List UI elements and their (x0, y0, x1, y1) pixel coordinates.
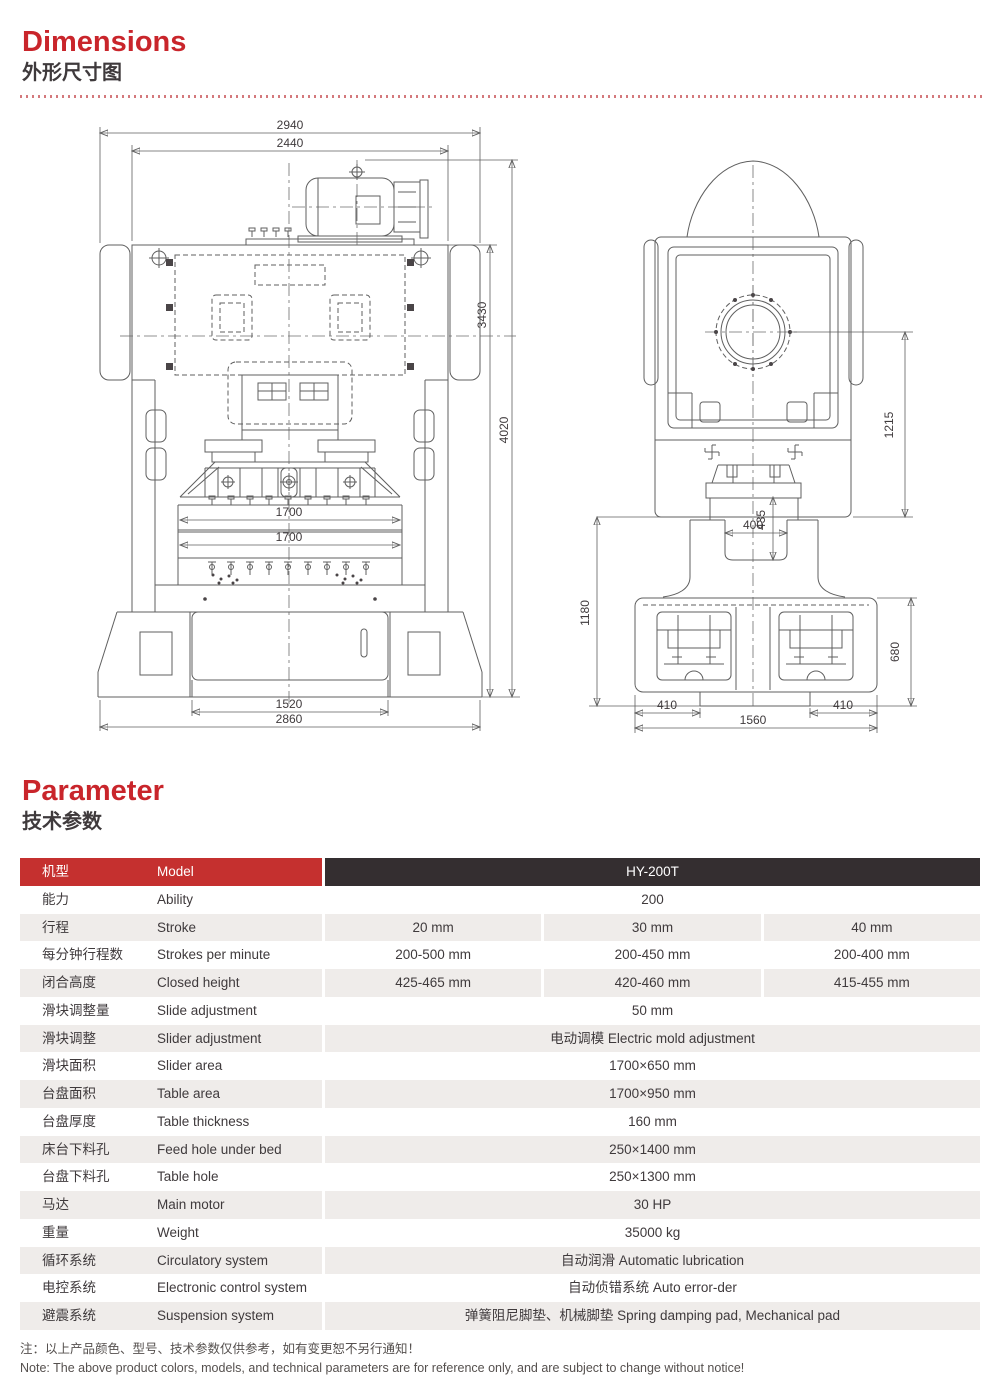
row-label: 每分钟行程数Strokes per minute (20, 941, 322, 969)
row-label-en: Table hole (157, 1163, 219, 1191)
dim-base-depth: 1560 (740, 713, 767, 727)
row-label: 滑块调整量Slide adjustment (20, 997, 322, 1025)
table-row: 台盘面积Table area1700×950 mm (20, 1080, 980, 1108)
row-label: 滑块面积Slider area (20, 1052, 322, 1080)
dimensions-title: Dimensions (22, 26, 186, 58)
dim-base-section-height: 1180 (578, 600, 592, 626)
row-value: 1700×650 mm (325, 1052, 980, 1080)
dimension-drawing: 2940 2440 3430 4020 (0, 115, 1000, 765)
table-header-label: 机型 Model (20, 858, 322, 886)
row-value: 40 mm (764, 914, 980, 942)
row-label: 能力Ability (20, 886, 322, 914)
row-label-cn: 避震系统 (42, 1302, 157, 1330)
row-label: 重量Weight (20, 1219, 322, 1247)
table-header-en: Model (157, 858, 194, 886)
row-values: 1700×950 mm (325, 1080, 980, 1108)
row-value: 200-450 mm (544, 941, 760, 969)
row-label: 电控系统Electronic control system (20, 1274, 322, 1302)
dim-foot-offset-right: 410 (833, 698, 853, 712)
table-row: 重量Weight35000 kg (20, 1219, 980, 1247)
table-row: 床台下料孔Feed hole under bed250×1400 mm (20, 1136, 980, 1164)
dim-bolster-width: 1700 (276, 530, 303, 544)
row-label: 台盘面积Table area (20, 1080, 322, 1108)
row-label-cn: 台盘面积 (42, 1080, 157, 1108)
row-value: 20 mm (325, 914, 541, 942)
row-values: 自动润滑 Automatic lubrication (325, 1247, 980, 1275)
table-row: 滑块面积Slider area1700×650 mm (20, 1052, 980, 1080)
slide-assembly (180, 362, 400, 505)
row-label-cn: 循环系统 (42, 1247, 157, 1275)
row-label-cn: 每分钟行程数 (42, 941, 157, 969)
side-slide-throat: 400 435 (663, 465, 845, 597)
row-value: 425-465 mm (325, 969, 541, 997)
row-label-cn: 滑块调整 (42, 1025, 157, 1053)
row-label-en: Strokes per minute (157, 941, 270, 969)
table-row: 闭合高度Closed height425-465 mm420-460 mm415… (20, 969, 980, 997)
parameter-header: Parameter 技术参数 (22, 775, 164, 835)
row-label-en: Suspension system (157, 1302, 274, 1330)
row-values: 250×1300 mm (325, 1163, 980, 1191)
table-row: 滑块调整量Slide adjustment50 mm (20, 997, 980, 1025)
row-values: 自动侦错系统 Auto error-der (325, 1274, 980, 1302)
row-values: 35000 kg (325, 1219, 980, 1247)
row-value: 50 mm (325, 997, 980, 1025)
side-base (635, 598, 877, 706)
row-values: 200 (325, 886, 980, 914)
dimensions-header: Dimensions 外形尺寸图 (22, 26, 186, 86)
table-row: 循环系统Circulatory system自动润滑 Automatic lub… (20, 1247, 980, 1275)
row-label: 台盘厚度Table thickness (20, 1108, 322, 1136)
row-values: 50 mm (325, 997, 980, 1025)
row-label-en: Main motor (157, 1191, 225, 1219)
row-value: 30 mm (544, 914, 760, 942)
row-label: 行程Stroke (20, 914, 322, 942)
table-header-value: HY-200T (325, 858, 980, 886)
dim-foot-offset-left: 410 (657, 698, 677, 712)
row-value: 160 mm (325, 1108, 980, 1136)
row-label: 台盘下料孔Table hole (20, 1163, 322, 1191)
row-label-en: Feed hole under bed (157, 1136, 282, 1164)
row-value: 420-460 mm (544, 969, 760, 997)
frame (100, 245, 480, 612)
table-header-row: 机型 Model HY-200T (20, 858, 980, 886)
row-label-cn: 重量 (42, 1219, 157, 1247)
row-values: 弹簧阻尼脚垫、机械脚垫 Spring damping pad, Mechanic… (325, 1302, 980, 1330)
row-label-en: Closed height (157, 969, 240, 997)
row-label: 马达Main motor (20, 1191, 322, 1219)
base: 1520 2860 (98, 597, 482, 731)
parameter-table: 机型 Model HY-200T 能力Ability200行程Stroke20 … (20, 858, 980, 1330)
parameter-subtitle: 技术参数 (22, 809, 164, 835)
flywheel-circle (705, 285, 801, 379)
bolster: 1700 1700 (155, 505, 425, 585)
row-values: 30 HP (325, 1191, 980, 1219)
dim-inner-width: 2440 (277, 136, 304, 150)
row-value: 415-455 mm (764, 969, 980, 997)
row-value: 电动调模 Electric mold adjustment (325, 1025, 980, 1053)
row-value: 自动润滑 Automatic lubrication (325, 1247, 980, 1275)
row-label: 床台下料孔Feed hole under bed (20, 1136, 322, 1164)
row-values: 160 mm (325, 1108, 980, 1136)
footnote: 注：以上产品颜色、型号、技术参数仅供参考，如有变更恕不另行通知！ Note: T… (20, 1340, 744, 1378)
row-label-en: Table area (157, 1080, 220, 1108)
table-row: 能力Ability200 (20, 886, 980, 914)
dim-crank-center-height: 1215 (882, 411, 896, 438)
row-label-en: Weight (157, 1219, 199, 1247)
row-label-en: Slider area (157, 1052, 222, 1080)
row-value: 200 (325, 886, 980, 914)
row-label: 循环系统Circulatory system (20, 1247, 322, 1275)
row-label-en: Circulatory system (157, 1247, 268, 1275)
row-value: 35000 kg (325, 1219, 980, 1247)
row-label: 闭合高度Closed height (20, 969, 322, 997)
row-values: 1700×650 mm (325, 1052, 980, 1080)
dim-overall-height: 4020 (497, 416, 511, 443)
row-value: 1700×950 mm (325, 1080, 980, 1108)
row-label-cn: 电控系统 (42, 1274, 157, 1302)
row-label-en: Ability (157, 886, 193, 914)
row-label: 滑块调整Slider adjustment (20, 1025, 322, 1053)
row-label-en: Stroke (157, 914, 196, 942)
row-label-en: Slide adjustment (157, 997, 257, 1025)
row-values: 电动调模 Electric mold adjustment (325, 1025, 980, 1053)
dim-frame-height: 3430 (475, 301, 489, 328)
row-values: 425-465 mm420-460 mm415-455 mm (325, 969, 980, 997)
dimensions-subtitle: 外形尺寸图 (22, 60, 186, 86)
row-value: 250×1300 mm (325, 1163, 980, 1191)
table-row: 台盘下料孔Table hole250×1300 mm (20, 1163, 980, 1191)
row-label-cn: 床台下料孔 (42, 1136, 157, 1164)
side-view: 400 435 1215 1180 (578, 161, 917, 733)
row-label-cn: 滑块面积 (42, 1052, 157, 1080)
row-label-en: Slider adjustment (157, 1025, 261, 1053)
row-value: 弹簧阻尼脚垫、机械脚垫 Spring damping pad, Mechanic… (325, 1302, 980, 1330)
row-label-en: Electronic control system (157, 1274, 307, 1302)
parameter-table-body: 能力Ability200行程Stroke20 mm30 mm40 mm每分钟行程… (20, 886, 980, 1330)
dim-base-width: 2860 (276, 712, 303, 726)
row-label-en: Table thickness (157, 1108, 249, 1136)
row-value: 30 HP (325, 1191, 980, 1219)
side-dims: 1215 1180 680 410 410 1560 (578, 332, 917, 733)
parameter-title: Parameter (22, 775, 164, 807)
dim-base-center-width: 1520 (276, 697, 303, 711)
motor (246, 164, 428, 245)
row-label-cn: 能力 (42, 886, 157, 914)
row-label-cn: 行程 (42, 914, 157, 942)
front-view: 2940 2440 3430 4020 (98, 118, 520, 731)
row-label-cn: 滑块调整量 (42, 997, 157, 1025)
row-label-cn: 台盘厚度 (42, 1108, 157, 1136)
dim-slide-width: 1700 (276, 505, 303, 519)
row-value: 200-400 mm (764, 941, 980, 969)
row-value: 自动侦错系统 Auto error-der (325, 1274, 980, 1302)
dotted-divider (20, 95, 986, 98)
row-values: 20 mm30 mm40 mm (325, 914, 980, 942)
table-row: 电控系统Electronic control system自动侦错系统 Auto… (20, 1274, 980, 1302)
row-value: 200-500 mm (325, 941, 541, 969)
table-row: 行程Stroke20 mm30 mm40 mm (20, 914, 980, 942)
row-label: 避震系统Suspension system (20, 1302, 322, 1330)
row-values: 200-500 mm200-450 mm200-400 mm (325, 941, 980, 969)
table-row: 台盘厚度Table thickness160 mm (20, 1108, 980, 1136)
dim-overall-width: 2940 (277, 118, 304, 132)
footnote-cn: 注：以上产品颜色、型号、技术参数仅供参考，如有变更恕不另行通知！ (20, 1340, 744, 1359)
dim-foot-height: 680 (888, 642, 902, 662)
row-label-cn: 闭合高度 (42, 969, 157, 997)
table-header-cn: 机型 (42, 858, 157, 886)
table-row: 避震系统Suspension system弹簧阻尼脚垫、机械脚垫 Spring … (20, 1302, 980, 1330)
row-values: 250×1400 mm (325, 1136, 980, 1164)
row-value: 250×1400 mm (325, 1136, 980, 1164)
dim-throat-depth: 435 (754, 510, 768, 530)
table-row: 滑块调整Slider adjustment电动调模 Electric mold … (20, 1025, 980, 1053)
table-row: 每分钟行程数Strokes per minute200-500 mm200-45… (20, 941, 980, 969)
footnote-en: Note: The above product colors, models, … (20, 1359, 744, 1378)
row-label-cn: 马达 (42, 1191, 157, 1219)
table-row: 马达Main motor30 HP (20, 1191, 980, 1219)
row-label-cn: 台盘下料孔 (42, 1163, 157, 1191)
